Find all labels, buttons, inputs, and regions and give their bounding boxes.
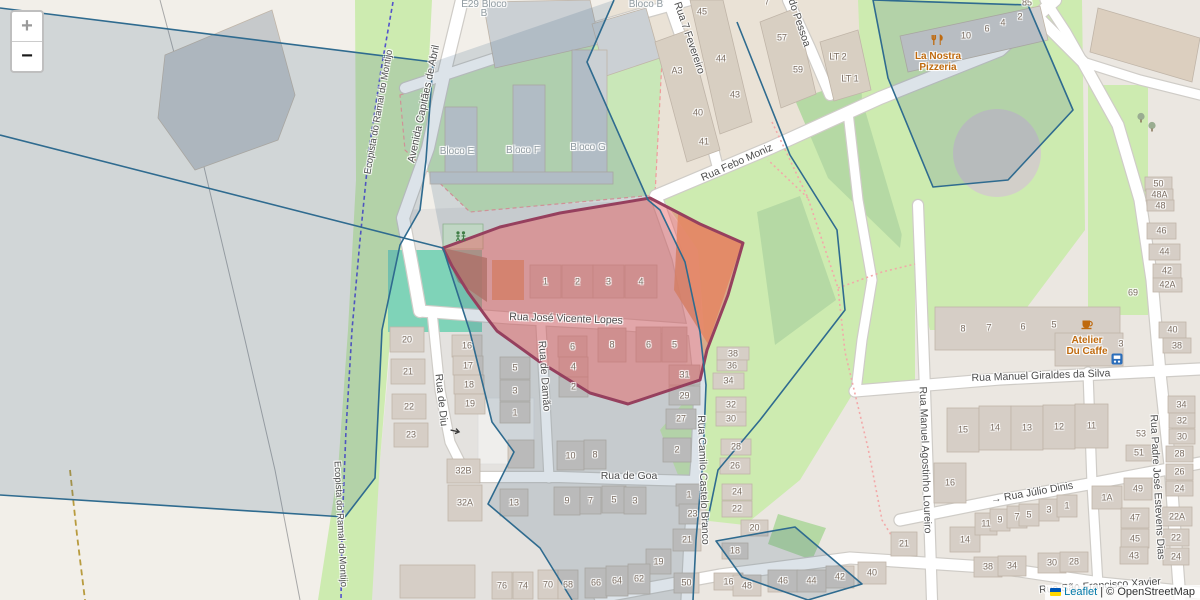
building-47 (1121, 508, 1149, 528)
building-24 (722, 484, 752, 500)
building-42A (1153, 278, 1182, 292)
building-45 (1121, 529, 1149, 548)
ukraine-flag-icon (1050, 588, 1061, 596)
map-vector-layer (0, 0, 1200, 600)
building-34 (1168, 396, 1195, 413)
building-1 (1057, 495, 1077, 517)
building-48 (1147, 200, 1174, 211)
building-20 (390, 327, 424, 352)
attribution-separator: | (1097, 586, 1106, 598)
map-viewport[interactable]: Avenida Capitães de AbrilEcopista do Ram… (0, 0, 1200, 600)
building-70 (538, 570, 558, 599)
building-15 (947, 408, 979, 452)
building-13 (1011, 406, 1043, 450)
building-46 (1147, 223, 1176, 239)
osm-attribution-text[interactable]: © OpenStreetMap (1106, 586, 1195, 598)
building-21 (891, 532, 917, 556)
building-11 (1075, 404, 1108, 448)
building-32A (448, 485, 482, 521)
building-32 (1169, 413, 1195, 428)
zoom-control: + − (10, 10, 44, 73)
building-32B (447, 459, 480, 483)
zoom-out-button[interactable]: − (12, 42, 42, 71)
building-38 (1163, 338, 1191, 353)
building-40 (1159, 322, 1186, 338)
building-30 (1169, 429, 1195, 444)
building-28 (1166, 446, 1193, 462)
building-40 (858, 562, 886, 584)
building-76 (492, 572, 512, 599)
building-24 (1163, 548, 1189, 565)
boundary-polygon-west (0, 8, 433, 517)
building-42 (1153, 264, 1181, 278)
building-22A (1162, 507, 1192, 526)
building-38 (717, 347, 749, 360)
building-12 (1043, 405, 1075, 449)
building-23 (394, 423, 428, 447)
building-3 (1039, 499, 1059, 521)
building-32 (716, 397, 746, 413)
zoom-in-button[interactable]: + (12, 12, 42, 42)
bus-icon (1112, 354, 1123, 365)
building-22 (1163, 529, 1189, 546)
building-28 (1060, 552, 1088, 572)
building-36 (717, 360, 747, 371)
building-18 (454, 375, 484, 394)
building-44 (1149, 244, 1180, 260)
building-34 (713, 373, 744, 389)
building-14 (979, 406, 1011, 450)
building-21 (391, 359, 425, 384)
attribution-bar: Leaflet | © OpenStreetMap (1045, 585, 1200, 600)
building-28 (721, 439, 751, 455)
building-49 (1124, 478, 1152, 500)
building-5 (1019, 504, 1039, 526)
building-19 (455, 394, 485, 414)
building-22 (392, 394, 426, 419)
building-16 (934, 463, 966, 503)
building-1A (1092, 486, 1122, 509)
building-43 (1120, 547, 1148, 564)
building-34 (998, 556, 1026, 576)
building-26 (720, 458, 750, 474)
building-22 (722, 501, 752, 517)
building-24 (1166, 481, 1193, 496)
building-74 (513, 572, 533, 599)
building (400, 565, 475, 598)
building-48A (1146, 189, 1173, 201)
building-51 (1126, 445, 1152, 461)
leaflet-link[interactable]: Leaflet (1064, 586, 1097, 598)
building-26 (1166, 464, 1193, 480)
building-30 (716, 412, 746, 426)
